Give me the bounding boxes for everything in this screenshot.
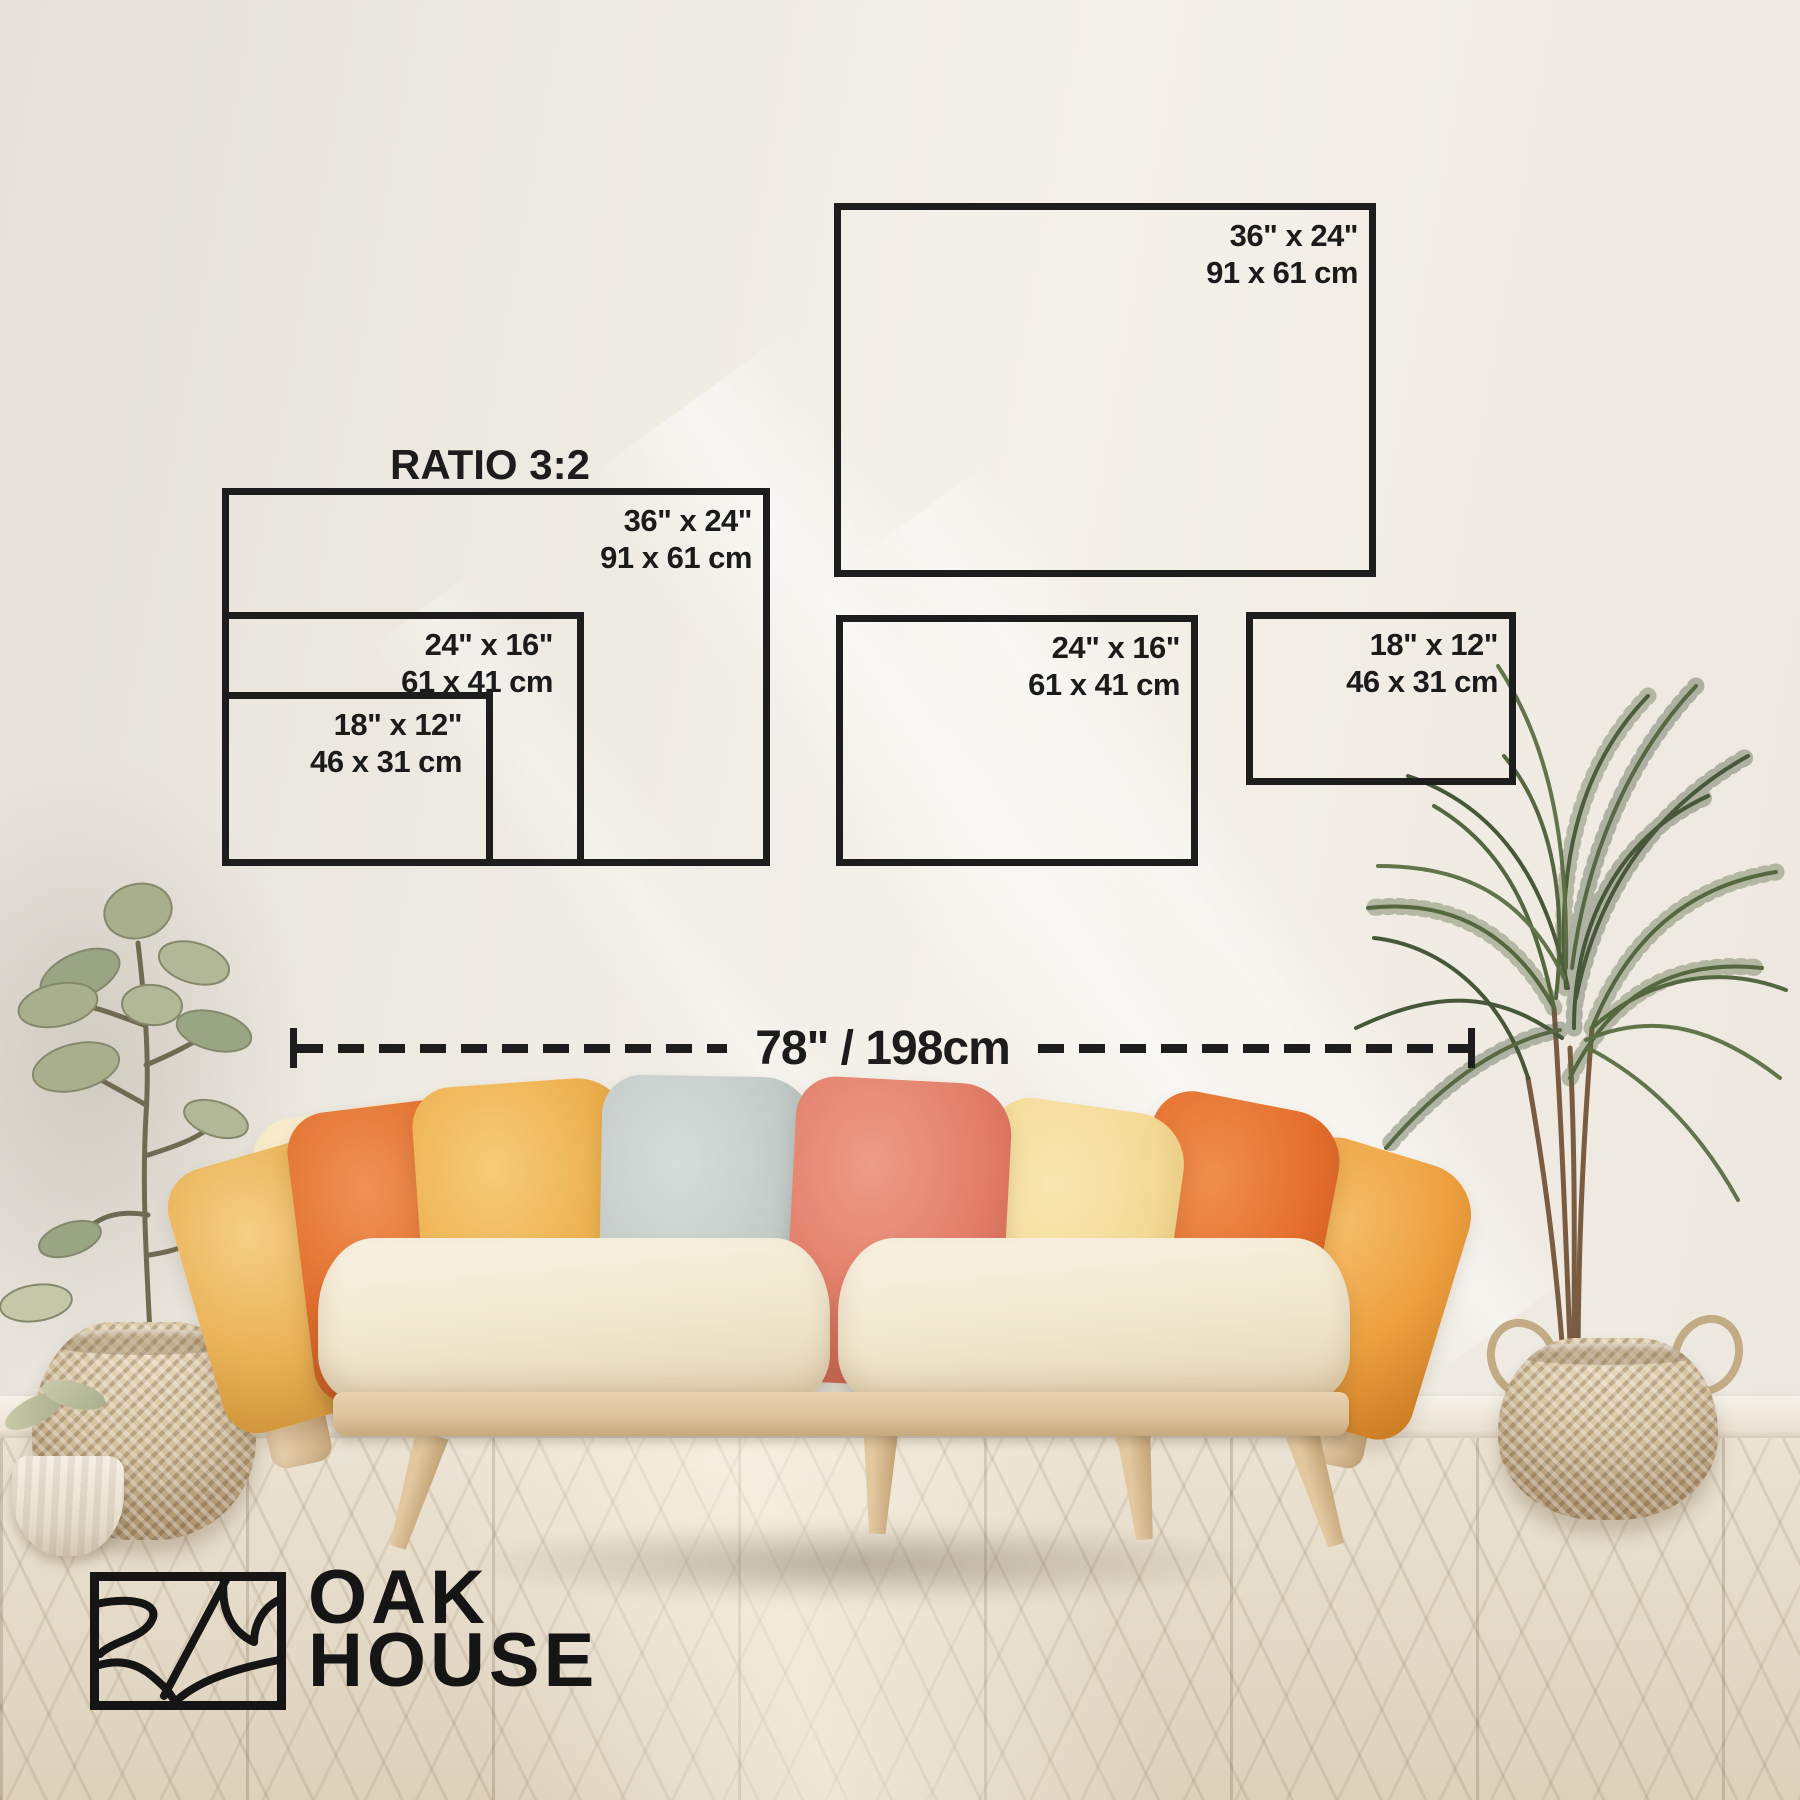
brand-wordmark: OAK HOUSE: [308, 1566, 598, 1692]
woven-basket-right: [1498, 1338, 1718, 1520]
size-label: 18" x 12" 46 x 31 cm: [1346, 626, 1498, 700]
size-label: 36" x 24" 91 x 61 cm: [600, 502, 752, 576]
measure-end-cap-left: [290, 1028, 297, 1068]
width-measurement: 78" / 198cm: [290, 1027, 1475, 1069]
size-frame-24x16: 24" x 16" 61 x 41 cm: [836, 615, 1198, 866]
measure-dashed-line: [297, 1044, 727, 1053]
size-frame-nested-18x12: 18" x 12" 46 x 31 cm: [222, 692, 493, 866]
size-label: 24" x 16" 61 x 41 cm: [1028, 629, 1180, 703]
size-label: 24" x 16" 61 x 41 cm: [401, 626, 553, 700]
size-frame-36x24: 36" x 24" 91 x 61 cm: [834, 203, 1376, 577]
size-guide-mockup-scene: RATIO 3:2 36" x 24" 91 x 61 cm 24" x 16"…: [0, 0, 1800, 1800]
sofa-base-rail: [333, 1392, 1349, 1436]
oak-house-logo-icon: [90, 1572, 286, 1710]
ratio-title: RATIO 3:2: [330, 441, 650, 489]
size-label: 36" x 24" 91 x 61 cm: [1206, 217, 1358, 291]
seat-cushion-right: [838, 1238, 1350, 1402]
measure-value: 78" / 198cm: [755, 1021, 1010, 1076]
size-frame-18x12: 18" x 12" 46 x 31 cm: [1246, 612, 1516, 785]
brand-line-2: HOUSE: [308, 1629, 598, 1692]
measure-dashed-line: [1038, 1044, 1468, 1053]
size-label: 18" x 12" 46 x 31 cm: [310, 706, 462, 780]
seat-cushion-left: [318, 1238, 830, 1402]
measure-end-cap-right: [1468, 1028, 1475, 1068]
